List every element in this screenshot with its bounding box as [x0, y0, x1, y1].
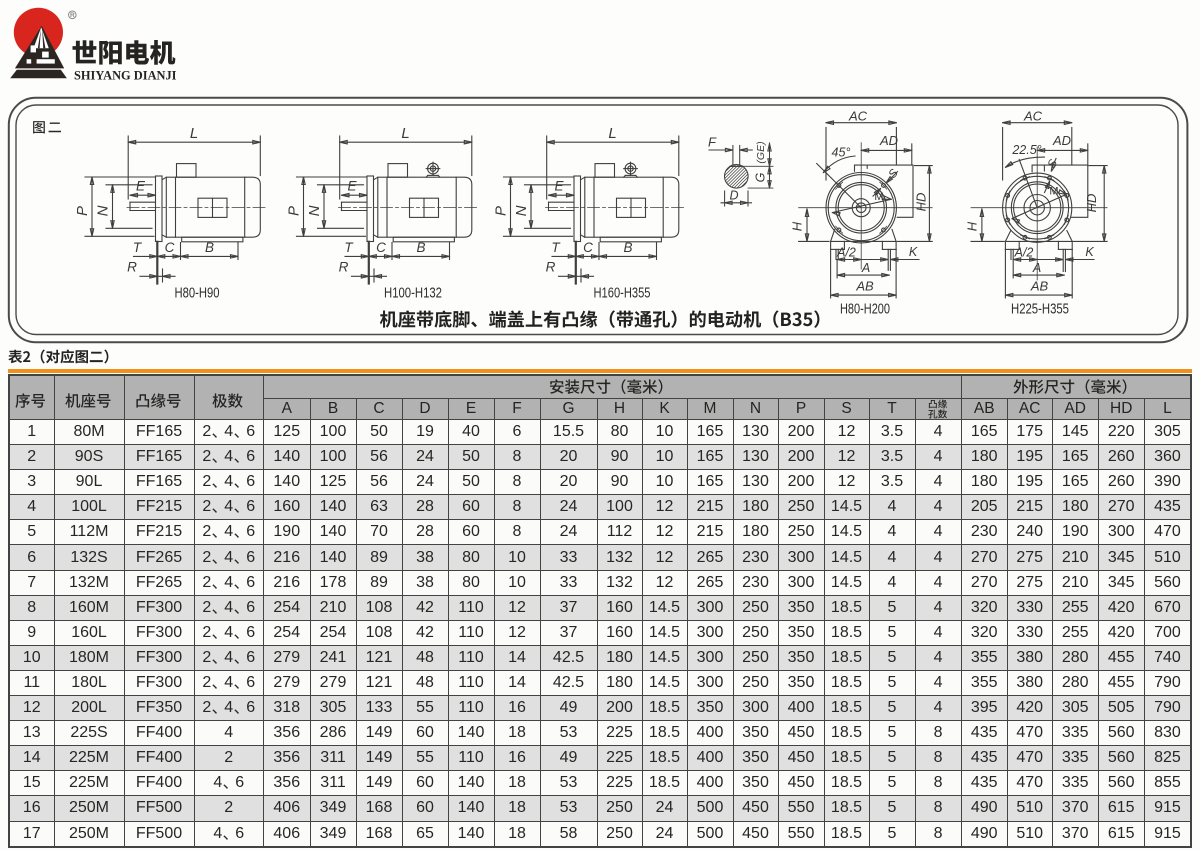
svg-text:H100-H132: H100-H132 [384, 285, 442, 301]
svg-text:H: H [965, 221, 980, 231]
svg-text:N: N [513, 205, 530, 216]
svg-text:N: N [95, 205, 112, 216]
svg-text:HD: HD [1084, 194, 1099, 213]
svg-text:P: P [493, 206, 510, 216]
svg-text:T: T [551, 240, 561, 255]
svg-text:AC: AC [848, 109, 868, 124]
svg-text:B: B [416, 240, 425, 255]
svg-text:H160-H355: H160-H355 [594, 285, 651, 301]
svg-text:E: E [554, 179, 564, 194]
svg-text:P: P [286, 206, 303, 216]
svg-text:AD: AD [1052, 133, 1071, 148]
svg-text:T: T [133, 240, 143, 255]
svg-text:C: C [376, 240, 386, 255]
svg-text:B: B [205, 240, 214, 255]
svg-text:HD: HD [913, 193, 928, 212]
svg-text:A/2: A/2 [1014, 246, 1034, 260]
svg-text:M: M [1049, 185, 1058, 197]
svg-text:N: N [306, 205, 323, 216]
svg-text:(GE): (GE) [755, 141, 767, 163]
svg-text:H: H [790, 221, 805, 231]
svg-text:AB: AB [855, 279, 874, 294]
svg-text:G: G [754, 172, 768, 182]
svg-text:C: C [583, 240, 593, 255]
svg-text:H80-H90: H80-H90 [175, 285, 220, 301]
svg-text:AB: AB [1030, 279, 1049, 294]
svg-text:E: E [136, 179, 146, 194]
svg-text:S: S [1046, 157, 1060, 170]
svg-text:R: R [546, 260, 556, 275]
svg-text:AC: AC [1023, 109, 1043, 124]
svg-text:R: R [127, 260, 137, 275]
svg-text:SHIYANG DIANJI: SHIYANG DIANJI [74, 69, 177, 83]
svg-text:C: C [165, 240, 175, 255]
svg-text:L: L [190, 125, 198, 142]
svg-text:K: K [1085, 245, 1094, 259]
svg-text:L: L [401, 125, 409, 142]
svg-text:A/2: A/2 [836, 246, 856, 260]
svg-text:P: P [74, 206, 91, 216]
svg-text:H225-H355: H225-H355 [1011, 301, 1069, 317]
svg-text:A: A [861, 261, 870, 275]
svg-text:B: B [623, 240, 632, 255]
svg-text:R: R [70, 12, 75, 19]
svg-text:H80-H200: H80-H200 [840, 301, 890, 317]
svg-text:L: L [608, 125, 616, 142]
svg-text:R: R [339, 260, 349, 275]
svg-text:E: E [347, 179, 357, 194]
svg-text:F: F [708, 135, 717, 150]
svg-text:22.5°: 22.5° [1011, 143, 1041, 157]
svg-text:45°: 45° [832, 146, 851, 160]
svg-text:D: D [729, 189, 738, 203]
svg-text:A: A [1032, 261, 1041, 275]
svg-text:AD: AD [879, 133, 898, 148]
svg-text:M: M [874, 191, 883, 203]
svg-text:T: T [344, 240, 354, 255]
svg-text:K: K [909, 245, 918, 259]
